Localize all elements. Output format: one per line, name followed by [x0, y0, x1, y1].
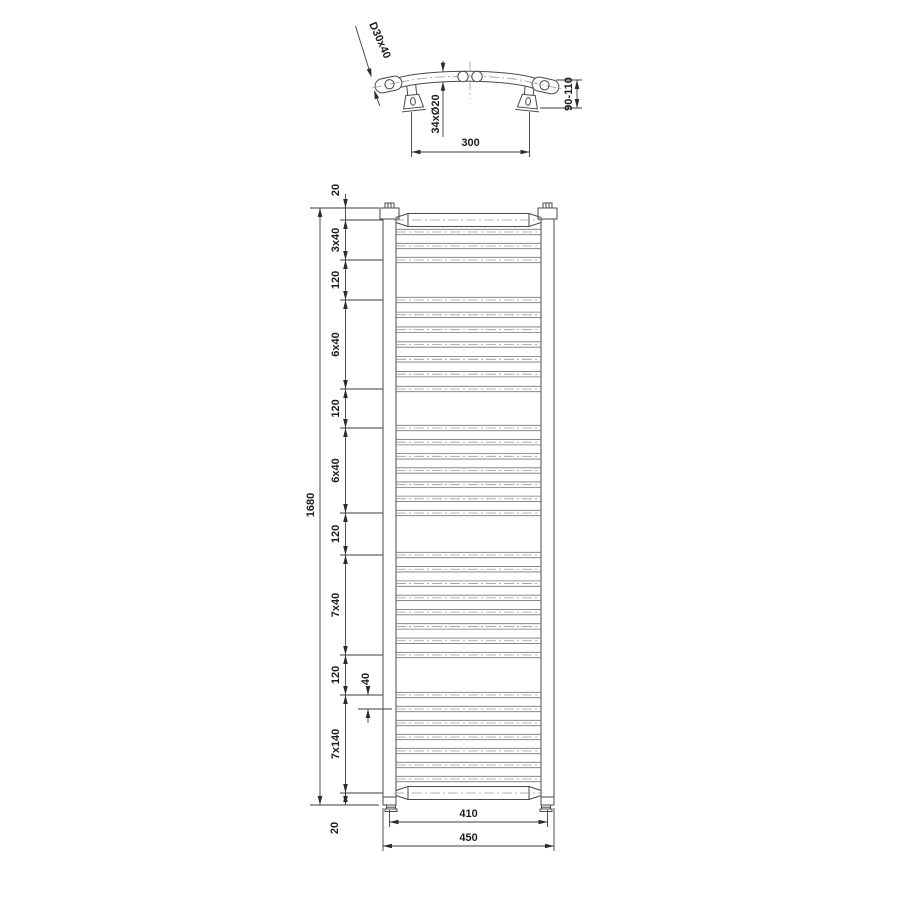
- vent-plug-right: [543, 203, 552, 208]
- bottom-rail: [394, 787, 543, 800]
- collector-left: [383, 219, 396, 805]
- dim-segment-8: 120: [330, 666, 342, 684]
- dim-wall-distance: 90-110: [563, 77, 575, 111]
- top-view: [370, 62, 563, 112]
- top-rail: [394, 214, 543, 227]
- front-view: [380, 203, 557, 812]
- rung-tubes: [396, 229, 541, 781]
- dim-segment-1: 3x40: [330, 228, 342, 252]
- dim-bracket-spacing: 300: [461, 137, 479, 149]
- dim-segment-7: 7x40: [330, 593, 342, 617]
- dim-segment-5: 6x40: [330, 458, 342, 482]
- dim-tube-count: 34xØ20: [430, 94, 442, 133]
- drawing-canvas: D30x4034xØ2090-1103001680203x401206x4012…: [0, 0, 900, 899]
- dim-segment-10: 20: [329, 822, 341, 834]
- vent-plug-left: [385, 203, 394, 208]
- dim-segment-4: 120: [330, 399, 342, 417]
- dim-segment-3: 6x40: [330, 332, 342, 356]
- dim-connection-width: 410: [459, 808, 477, 820]
- dim-segment-9: 7x140: [330, 729, 342, 760]
- dim-overall-width: 450: [459, 832, 477, 844]
- dim-segment-6: 120: [330, 525, 342, 543]
- collector-section-right: [527, 75, 563, 96]
- collector-right: [541, 219, 554, 805]
- dim-overall-height: 1680: [305, 493, 317, 517]
- dim-profile-d30x40: D30x40: [366, 20, 393, 60]
- dim-tube-gap: 40: [360, 673, 372, 685]
- dimension-annotations: D30x4034xØ2090-1103001680203x401206x4012…: [305, 20, 582, 851]
- center-boss: [458, 71, 468, 81]
- dim-segment-2: 120: [330, 271, 342, 289]
- technical-drawing: D30x4034xØ2090-1103001680203x401206x4012…: [0, 0, 900, 899]
- dim-segment-0: 20: [330, 184, 342, 196]
- center-boss: [472, 71, 482, 81]
- wall-bracket-left: [400, 85, 425, 112]
